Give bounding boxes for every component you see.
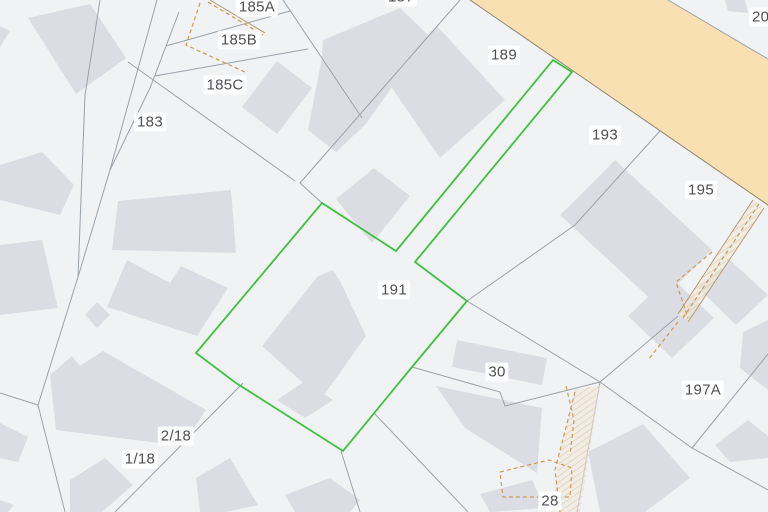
map-viewport[interactable]: 187185A185B185C183189204193195191197A302…: [0, 0, 768, 512]
building-footprint: [50, 351, 206, 446]
building-footprint: [112, 190, 236, 253]
building-footprint: [715, 420, 768, 462]
building-footprint: [0, 500, 14, 512]
building-footprint: [725, 0, 748, 13]
building-footprint: [0, 240, 58, 315]
building-footprint: [560, 160, 712, 305]
parcel-boundary-line: [0, 393, 38, 405]
building-footprint: [0, 152, 74, 215]
easement-line: [210, 0, 265, 33]
building-footprint: [0, 423, 28, 462]
building-footprint: [285, 478, 360, 512]
building-footprint: [588, 424, 690, 512]
easement-dashed-line: [208, 2, 263, 35]
building-footprint: [740, 320, 768, 390]
parcel-boundary-line: [166, 11, 290, 46]
building-footprint: [336, 168, 410, 243]
building-footprint: [85, 302, 110, 328]
building-footprint: [28, 4, 126, 94]
building-footprint: [0, 26, 10, 47]
building-footprint: [480, 480, 545, 512]
parcel-boundary-line: [374, 413, 468, 512]
selected-parcel-outline[interactable]: [196, 60, 572, 451]
building-footprint: [196, 458, 258, 512]
cadastral-map-canvas[interactable]: [0, 0, 768, 512]
easement-hatch-area: [552, 385, 600, 512]
building-footprint: [262, 270, 366, 399]
building-footprint: [242, 61, 312, 134]
building-footprint: [436, 386, 542, 473]
selected-parcel-layer: [196, 60, 572, 451]
building-footprint: [452, 340, 547, 385]
building-footprint: [107, 260, 228, 336]
